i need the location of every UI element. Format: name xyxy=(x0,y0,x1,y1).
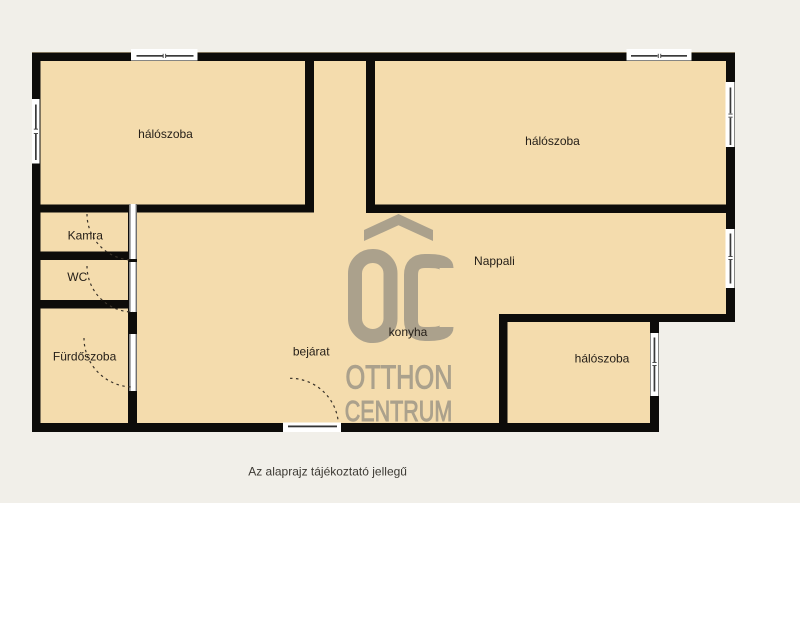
svg-text:hálószoba: hálószoba xyxy=(138,127,193,141)
svg-text:WC: WC xyxy=(67,270,87,284)
svg-text:konyha: konyha xyxy=(389,325,428,339)
svg-text:hálószoba: hálószoba xyxy=(525,134,580,148)
svg-text:OTTHON: OTTHON xyxy=(346,359,453,396)
svg-text:bejárat: bejárat xyxy=(293,344,330,358)
svg-text:Kamra: Kamra xyxy=(68,229,104,243)
svg-text:Az alaprajz tájékoztató jelleg: Az alaprajz tájékoztató jellegű xyxy=(248,465,407,479)
svg-text:hálószoba: hálószoba xyxy=(575,352,630,366)
svg-text:Nappali: Nappali xyxy=(474,254,515,268)
svg-text:Fürdőszoba: Fürdőszoba xyxy=(53,350,117,364)
